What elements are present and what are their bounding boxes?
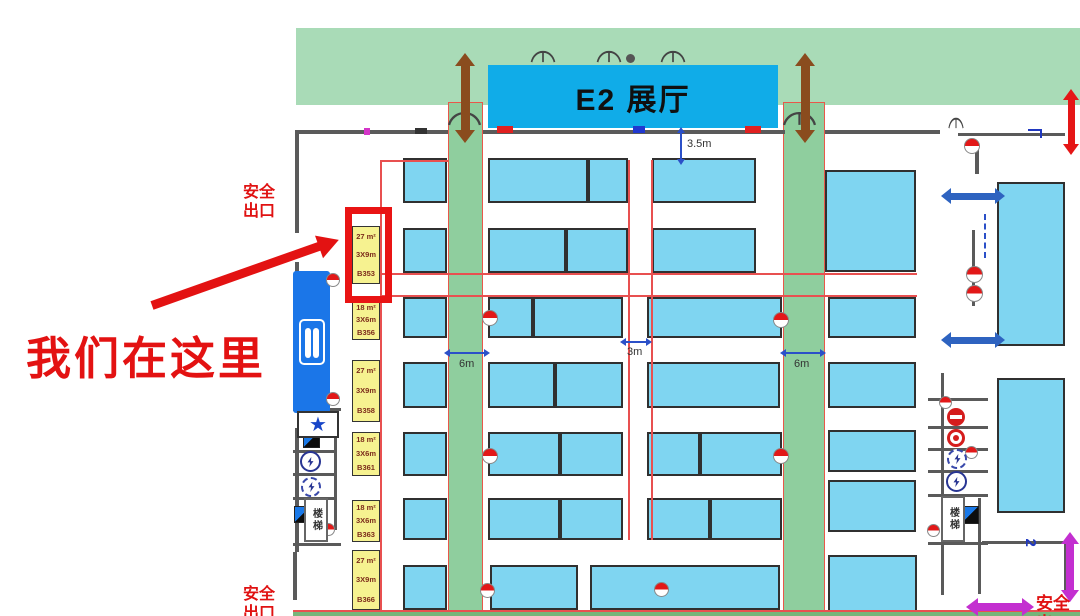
door-arc-icon (596, 50, 622, 63)
dot-icon (626, 54, 635, 63)
ring-bolt-icon (946, 471, 967, 492)
booth (710, 498, 782, 540)
wall-segment (295, 428, 299, 552)
booth (588, 158, 628, 203)
tick-red-icon (745, 126, 761, 133)
booth (647, 297, 782, 338)
booth (828, 362, 916, 408)
boundary-line (380, 295, 917, 297)
restroom-icon (299, 319, 325, 365)
booth (488, 228, 566, 273)
booth-area: 18 m² (356, 504, 376, 512)
booth-label-B358: 27 m²3X9mB358 (352, 360, 380, 422)
wall-segment (293, 473, 334, 476)
booth (490, 565, 578, 610)
dim-label-3-5m: 3.5m (687, 138, 711, 151)
booth-size: 3X9m (356, 576, 376, 584)
booth-id: B356 (357, 329, 375, 337)
wall-segment (334, 430, 337, 530)
booth-size: 3X6m (356, 450, 376, 458)
boundary-line (651, 160, 653, 540)
exhibition-floorplan: E2 展厅 安全 出口 安全 出口 安全出 我们在这里 ★楼梯楼梯27 m²3X… (0, 0, 1080, 616)
wall-segment (293, 552, 297, 600)
dashed-ring-bolt-icon (947, 449, 967, 469)
booth (488, 362, 555, 408)
booth-label-B361: 18 m²3X6mB361 (352, 432, 380, 476)
booth (828, 430, 916, 472)
exit-arrow-top-right (1068, 100, 1075, 144)
booth (403, 297, 447, 338)
no-entry-icon (947, 408, 965, 426)
booth (488, 498, 560, 540)
booth (403, 565, 447, 610)
hydrant-icon (773, 448, 789, 464)
hydrant-icon (773, 312, 789, 328)
exit-arrow-bottom-right-h (978, 603, 1022, 611)
booth-area: 27 m² (356, 367, 376, 375)
booth-highlight-box (345, 207, 392, 303)
booth (700, 432, 782, 476)
red-dot-ring-icon (947, 429, 965, 447)
booth (647, 362, 780, 408)
booth (652, 228, 756, 273)
stairs-icon: 楼梯 (941, 496, 965, 542)
dim-label-3m: 3m (627, 346, 642, 359)
exit-label-top-left: 安全 出口 (243, 184, 275, 222)
boundary-line (380, 273, 917, 275)
tick-blue-icon (633, 126, 645, 133)
booth-area: 18 m² (356, 304, 376, 312)
hydrant-icon (939, 396, 952, 409)
loading-arrow-left (461, 66, 470, 130)
hydrant-icon (654, 582, 669, 597)
booth-id: B366 (357, 596, 375, 604)
wall-segment (958, 133, 1065, 136)
dim-label-6m-left: 6m (459, 358, 474, 371)
star-box-icon: ★ (297, 411, 339, 438)
booth (403, 158, 447, 203)
booth (533, 297, 623, 338)
wall-segment (975, 150, 979, 174)
booth (488, 432, 560, 476)
hydrant-icon (326, 392, 340, 406)
flow-arrow-right-2 (951, 337, 995, 344)
restroom-block (293, 271, 330, 413)
hydrant-icon (482, 310, 498, 326)
hydrant-icon (966, 285, 983, 302)
door-arc-icon (782, 111, 817, 126)
hydrant-icon (480, 583, 495, 598)
booth (828, 297, 916, 338)
door-arc-icon (948, 117, 964, 129)
exit-label-bottom-left: 安全 出口 (243, 586, 275, 616)
dashline-v-icon (984, 214, 986, 258)
wall-segment (825, 130, 940, 134)
door-arc-icon (660, 50, 686, 63)
booth (566, 228, 628, 273)
booth-size: 3X9m (356, 387, 376, 395)
stairs-icon: 楼梯 (304, 498, 328, 542)
booth-id: B361 (357, 464, 375, 472)
booth (997, 378, 1065, 513)
dim-arrow-6m-left (450, 352, 484, 355)
booth (403, 228, 447, 273)
tick-magenta-icon (364, 128, 370, 135)
rotated-2-label: 2 (1022, 538, 1039, 546)
dim-arrow-3_5m (680, 133, 683, 159)
booth (560, 498, 623, 540)
hydrant-icon (482, 448, 498, 464)
booth-id: B363 (357, 531, 375, 539)
hydrant-icon (326, 273, 340, 287)
dim-label-6m-right: 6m (794, 358, 809, 371)
booth (403, 432, 447, 476)
exit-arrow-bottom-right-v (1066, 544, 1074, 590)
booth (652, 158, 756, 203)
wall-segment (293, 543, 341, 546)
bottom-band (293, 610, 1080, 616)
loading-arrow-right (801, 66, 810, 130)
dim-arrow-3m (626, 341, 646, 344)
dim-arrow-6m-right (786, 352, 820, 355)
booth-label-B356: 18 m²3X6mB356 (352, 300, 380, 340)
booth-id: B358 (357, 407, 375, 415)
hall-sign-label: E2 展厅 (575, 75, 690, 119)
booth-label-B363: 18 m²3X6mB363 (352, 500, 380, 542)
booth-size: 3X6m (356, 517, 376, 525)
booth-size: 3X6m (356, 316, 376, 324)
hydrant-icon (966, 266, 983, 283)
tick-red-icon (497, 126, 513, 133)
booth (647, 498, 710, 540)
booth (555, 362, 623, 408)
dashed-ring-bolt-icon (301, 477, 321, 497)
booth (828, 480, 916, 532)
ring-bolt-icon (300, 451, 321, 472)
booth (647, 432, 700, 476)
booth (403, 362, 447, 408)
wall-segment (928, 398, 988, 401)
booth (488, 158, 588, 203)
bluehook-icon (1028, 129, 1042, 138)
booth (997, 182, 1065, 346)
we-are-here-label: 我们在这里 (26, 322, 266, 387)
booth (590, 565, 780, 610)
boundary-line (380, 160, 448, 162)
booth (403, 498, 447, 540)
hall-sign: E2 展厅 (488, 65, 778, 128)
booth (828, 555, 917, 612)
door-arc-icon (530, 50, 556, 63)
hydrant-icon (964, 138, 980, 154)
wall-segment (295, 130, 299, 233)
booth (560, 432, 623, 476)
booth-label-B366: 27 m²3X9mB366 (352, 550, 380, 610)
exit-label-bottom-right: 安全出 (1036, 594, 1080, 616)
booth-area: 27 m² (356, 557, 376, 565)
booth (825, 170, 916, 272)
booth-area: 18 m² (356, 436, 376, 444)
flow-arrow-right-1 (951, 193, 995, 200)
hydrant-icon (927, 524, 940, 537)
tick-dark-icon (415, 128, 427, 134)
